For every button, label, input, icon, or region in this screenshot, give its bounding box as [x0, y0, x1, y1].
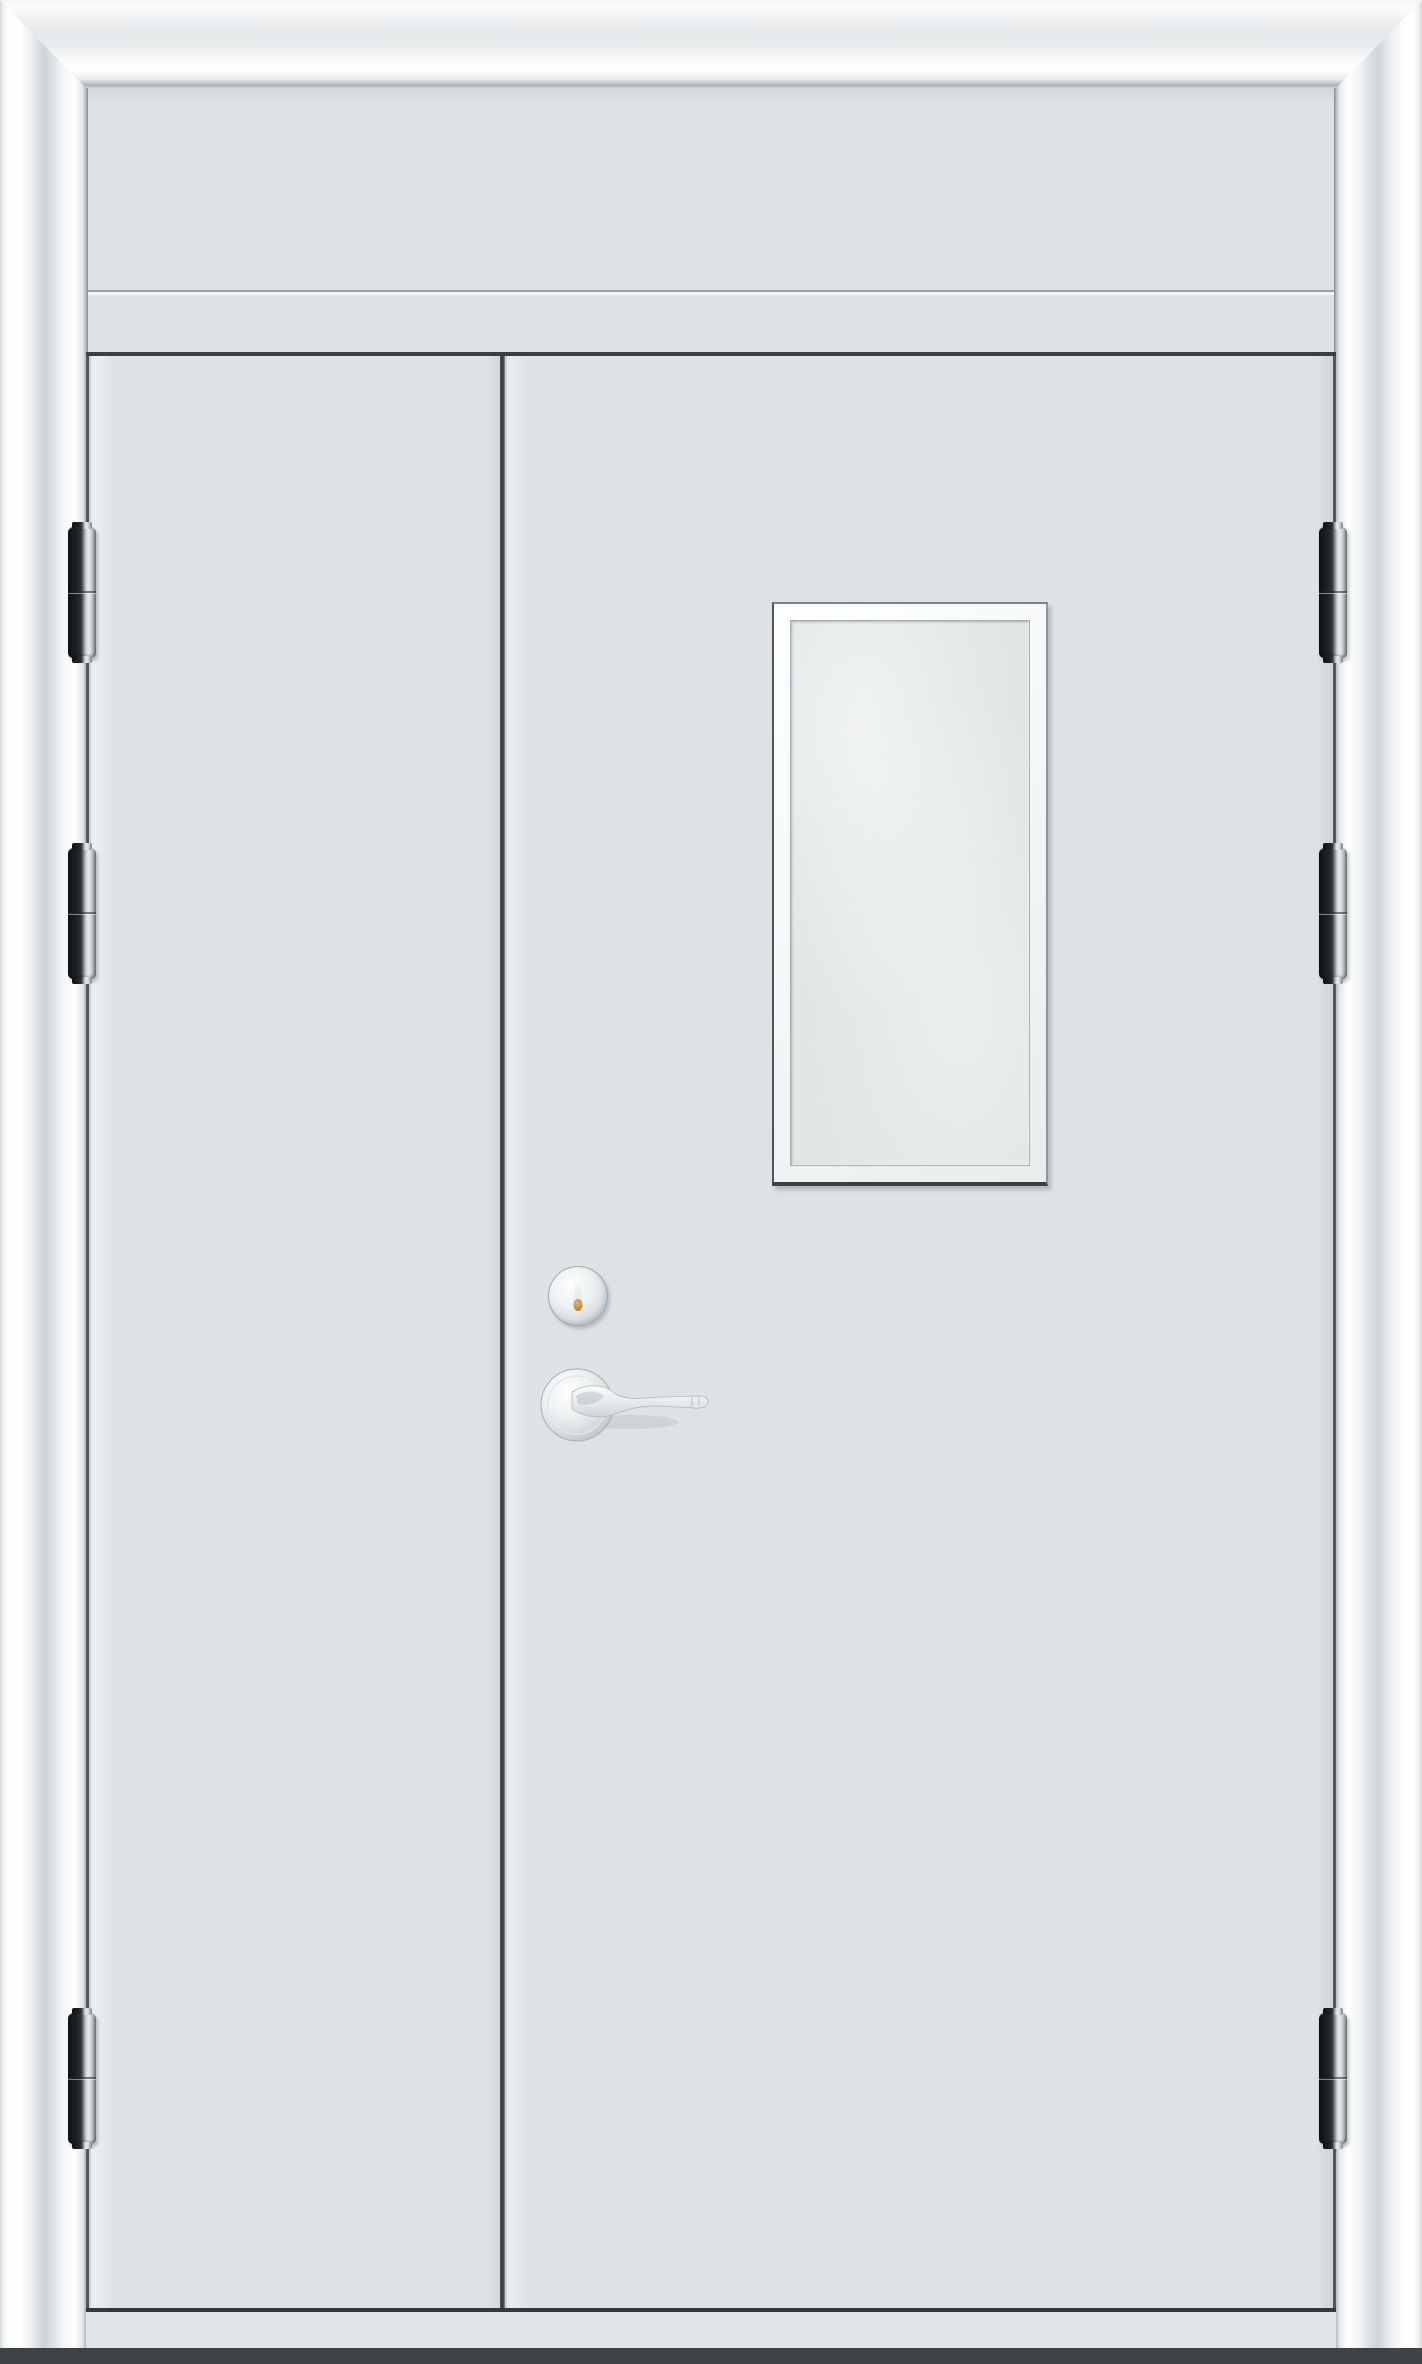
hinge-knuckle-seam	[1319, 591, 1347, 593]
door-product-photo	[0, 0, 1422, 2364]
hinge-knuckle-seam	[68, 2077, 96, 2079]
keyhole-brass	[574, 1299, 583, 1311]
threshold-strip	[86, 2312, 1336, 2348]
hinge-right-middle	[1319, 848, 1347, 979]
vision-window-frame	[772, 602, 1048, 1186]
meeting-stile-gap	[500, 356, 505, 2308]
floor-line	[0, 2348, 1422, 2364]
hinge-knuckle-seam	[68, 912, 96, 914]
hinge-knuckle-seam	[68, 591, 96, 593]
hinge-right-top	[1319, 527, 1347, 658]
frame-head	[0, 0, 1422, 88]
frame-right-jamb	[1334, 0, 1422, 2364]
left-door-leaf	[89, 356, 500, 2308]
vision-window-glass	[790, 620, 1030, 1166]
lever-handle	[520, 1352, 720, 1462]
hinge-right-bottom	[1319, 2013, 1347, 2144]
transom-panel	[88, 88, 1334, 352]
hinge-left-bottom	[68, 2013, 96, 2144]
hinge-left-middle	[68, 848, 96, 979]
cylinder-lock	[548, 1266, 608, 1326]
hinge-knuckle-seam	[1319, 2077, 1347, 2079]
hinge-knuckle-seam	[1319, 912, 1347, 914]
hinge-left-top	[68, 527, 96, 658]
transom-trim-highlight	[88, 292, 1334, 295]
